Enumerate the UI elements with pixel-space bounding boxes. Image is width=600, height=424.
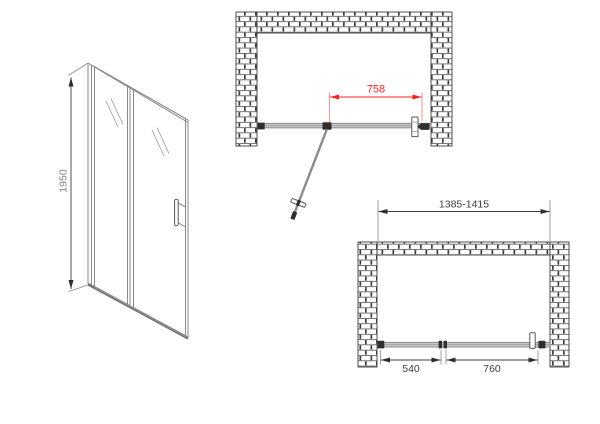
door-handle-icon: [530, 333, 535, 349]
pivot-hinge-icon: [323, 122, 332, 129]
brick-wall-right: [550, 242, 569, 367]
wall-profile-icon: [412, 117, 418, 137]
height-dimension-label: 1950: [58, 169, 70, 193]
fixed-panel-dimension-label: 540: [402, 363, 420, 375]
door-panel-dimension-label: 760: [483, 363, 501, 375]
technical-drawing-canvas: 1950: [0, 0, 600, 424]
wall-bracket-left-icon: [377, 341, 384, 349]
wall-bracket-right-icon: [538, 341, 545, 349]
brick-wall-right: [431, 12, 452, 146]
drawing-page: 1950: [0, 0, 600, 424]
brick-wall-top: [377, 242, 550, 255]
brick-wall-left: [358, 242, 377, 367]
wall-bracket-left-icon: [257, 123, 264, 130]
brick-wall-left: [236, 12, 257, 146]
door-width-dimension-label: 758: [367, 84, 385, 96]
opening-dimension-label: 1385-1415: [439, 199, 489, 211]
brick-wall-top: [257, 12, 431, 33]
